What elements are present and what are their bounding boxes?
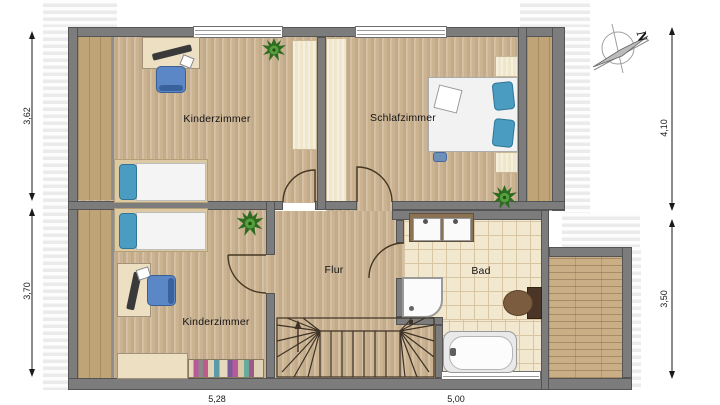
desk-chair [156,66,186,93]
shower [402,277,443,318]
window-kinderzimmer-1 [193,26,283,38]
room-label-kinderzimmer-1: Kinderzimmer [183,113,250,125]
nightstand-top [495,56,518,77]
wall-bad-left-upper [396,220,404,243]
knee-shelf-central-right [326,38,347,210]
dimension-text-left-bottom: 3,70 [22,282,32,300]
wall-right-schlafzimmer [518,27,527,211]
wall-bad-right [541,210,549,390]
compass-north-icon: N [593,24,649,73]
wall-right-outer [552,27,565,211]
knee-deck-right [527,37,552,211]
slippers [433,152,447,162]
plant-icon [262,38,286,62]
room-floor-flur [266,211,404,378]
desk [117,263,151,317]
wall-flur-kz2-lower [266,293,275,378]
folded-blanket [433,84,462,113]
knee-shelf-central-left [292,40,317,150]
svg-text:N: N [633,30,650,43]
plant-icon [491,185,518,210]
wall-terrace-right [622,247,632,378]
toilet [503,287,542,317]
room-label-flur: Flur [325,264,344,276]
roof-hatch-right-upper [564,27,590,213]
nightstand-bottom [495,152,518,173]
roof-hatch-right-mid [562,213,640,247]
sideboard [117,353,188,379]
knee-deck-left-lower [78,208,113,378]
wall-terrace-top [549,247,632,257]
roof-hatch-top-left [43,0,117,27]
dimension-line-right-top [669,27,675,211]
bed [114,208,208,252]
bookshelf [188,359,264,378]
roof-deck-terrace [549,257,622,378]
room-label-schlafzimmer: Schlafzimmer [370,112,436,124]
dimension-text-right-top: 4,10 [659,119,669,137]
roof-hatch-right-lower [632,247,641,390]
room-label-bad: Bad [471,265,490,277]
floor-plan: N Kinderzimmer Schlafzimmer Kinderzimmer… [0,0,720,405]
roof-hatch-left [43,27,68,390]
plant-icon [236,210,264,237]
bathtub-faucet [450,348,456,356]
double-sink [409,213,474,242]
desk [142,37,200,69]
dimension-line-right-bottom [669,219,675,379]
dimension-text-left-top: 3,62 [22,107,32,125]
double-bed [428,77,518,152]
bed [114,159,208,203]
wall-mid-horizontal-east [392,201,565,210]
dimension-text-bottom-right: 5,00 [447,394,465,404]
wall-flur-kz2-upper [266,201,275,255]
roof-hatch-top-right [520,0,590,27]
wall-top [68,27,565,37]
wall-central-vertical [317,37,326,210]
desk-chair [147,275,176,306]
room-label-kinderzimmer-2: Kinderzimmer [182,316,249,328]
wall-bad-step [396,317,443,325]
window-schlafzimmer [355,26,447,38]
bathtub [443,331,517,373]
dimension-text-right-bottom: 3,50 [659,290,669,308]
dimension-text-bottom-left: 5,28 [208,394,226,404]
knee-deck-left-upper [78,37,113,200]
